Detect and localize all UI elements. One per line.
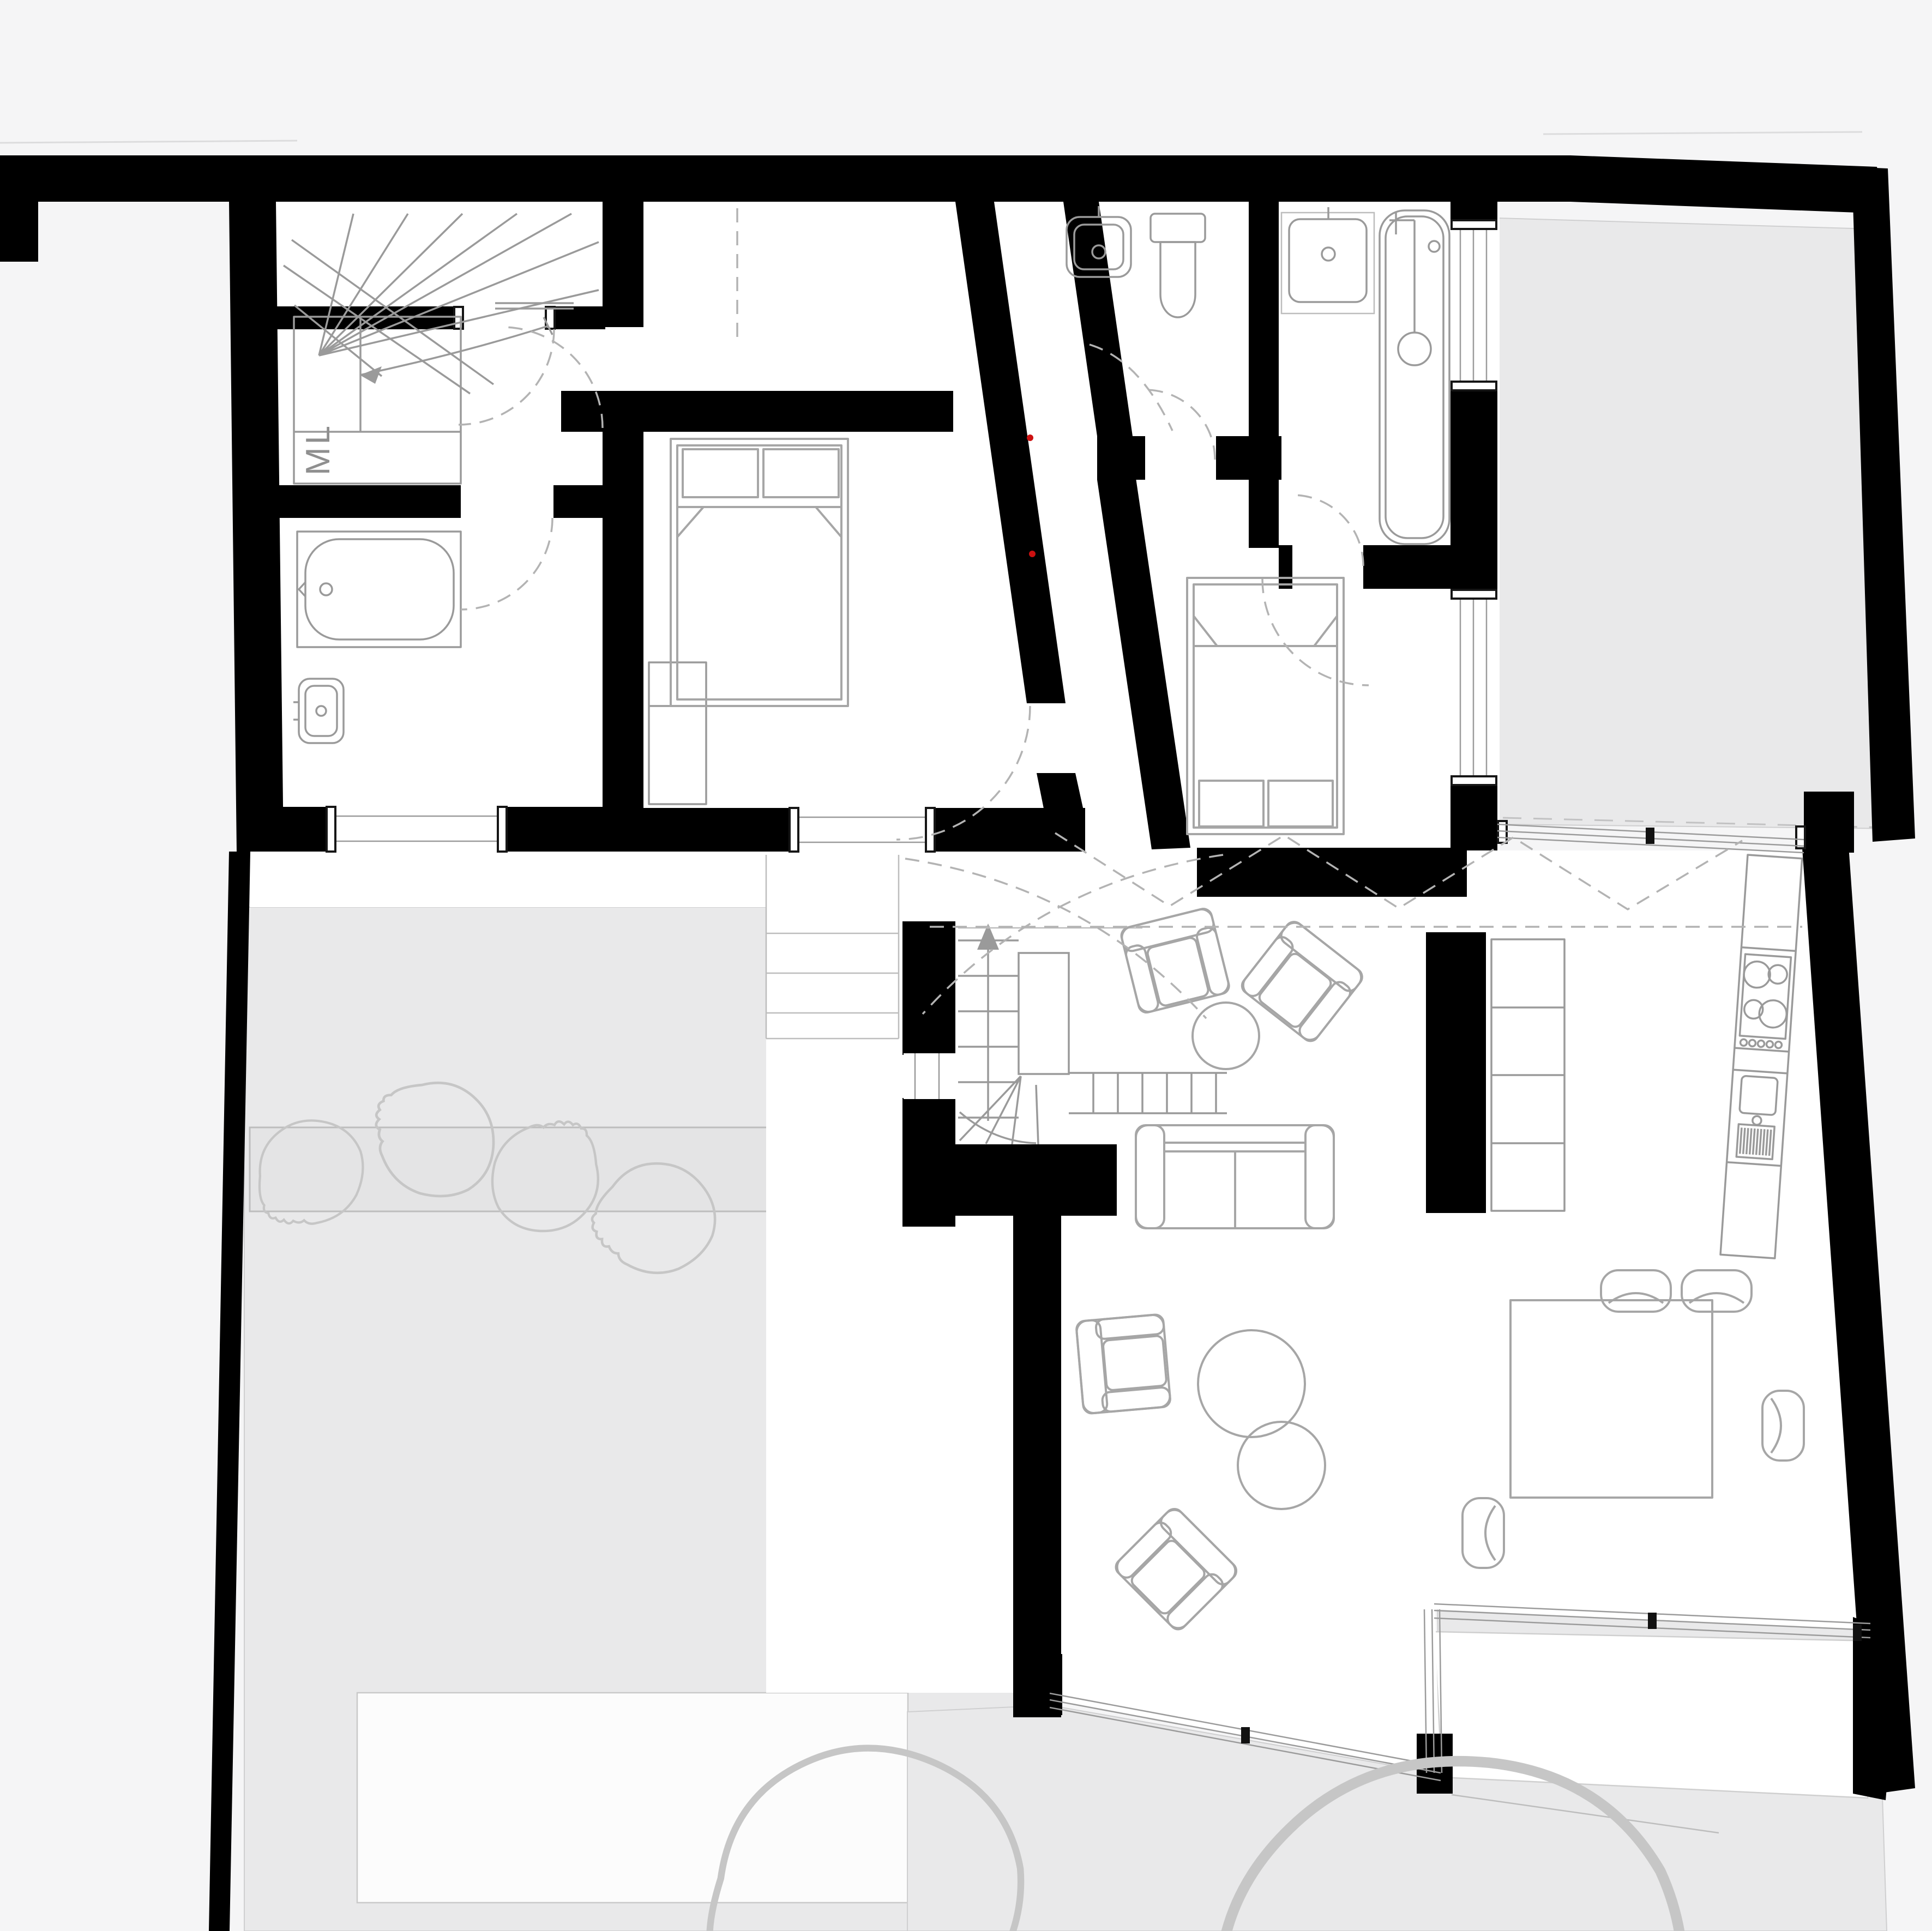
east-wall-seg-bottom <box>1450 777 1497 850</box>
mullion <box>1853 1625 1862 1641</box>
bedroom2-south-wall <box>1197 848 1467 897</box>
mullion <box>1648 1613 1657 1629</box>
window-frame-mark <box>1452 590 1496 599</box>
floor-plan-drawing: ML <box>0 0 1932 1931</box>
wall-below-stair-east <box>553 306 605 329</box>
window-gap <box>797 808 927 853</box>
entry-strip-floor <box>250 850 768 907</box>
garden-paved-area <box>357 1693 908 1903</box>
courtyard-south-glazing <box>1497 824 1804 853</box>
core-wall-upper <box>603 202 643 327</box>
washing-machine-label: ML <box>299 423 337 475</box>
faint-boundary-line <box>0 141 297 143</box>
bath-south-wall-b <box>499 807 643 852</box>
laundry-south-wall-east <box>553 485 603 518</box>
shower-room-south-wall-a <box>1279 545 1292 589</box>
mullion <box>1241 1727 1250 1743</box>
floor-plan-page: ML <box>0 0 1932 1931</box>
east-window-upper <box>1450 220 1497 390</box>
laundry-south-wall <box>275 485 461 518</box>
door-axis-marker <box>1027 435 1033 441</box>
window-frame-mark <box>327 807 335 852</box>
bedroom1-north-wall <box>561 391 953 432</box>
window-frame-mark <box>1452 220 1496 229</box>
courtyard <box>1497 218 1893 829</box>
stair-void-island <box>1019 953 1069 1074</box>
bath-south-wall-a <box>275 807 334 852</box>
facade-post-a <box>1021 1654 1062 1715</box>
window-frame-mark <box>790 808 798 852</box>
bath-south-window <box>327 807 507 853</box>
window-frame-mark <box>498 807 507 852</box>
window-gap <box>904 1053 955 1099</box>
window-frame-mark <box>926 808 935 852</box>
upper-block-floor <box>251 202 1500 852</box>
shower-room-south-wall-b <box>1363 545 1450 589</box>
living-divider-stub <box>1426 932 1486 1213</box>
stair-block-south-wall <box>927 1144 1117 1216</box>
faint-boundary-line <box>1543 132 1862 134</box>
east-wall-seg-mid <box>1450 383 1497 598</box>
stair-block-west-window <box>904 1053 955 1099</box>
courtyard-north-wall <box>1570 155 1886 214</box>
mullion <box>1646 828 1654 844</box>
window-gap <box>334 807 499 853</box>
wc-south-wall-a <box>1097 436 1145 480</box>
living-ne-post <box>1804 792 1854 853</box>
living-west-wall <box>1013 1216 1061 1717</box>
north-wall-west-cap <box>0 155 38 262</box>
door-axis-marker <box>1029 551 1036 557</box>
terrace-deck-lower <box>1434 1632 1876 1798</box>
bedroom1-south-wall-a <box>643 808 797 852</box>
window-frame-mark <box>1452 776 1496 785</box>
east-window-lower <box>1450 590 1497 785</box>
door-frame-mark <box>1796 826 1805 848</box>
west-wall-upper <box>229 202 284 852</box>
north-wall <box>0 155 1570 202</box>
wc-divider-wall <box>1249 202 1279 548</box>
window-frame-mark <box>1452 382 1496 390</box>
core-wall-lower <box>603 431 643 808</box>
bedroom1-south-window <box>790 808 935 853</box>
